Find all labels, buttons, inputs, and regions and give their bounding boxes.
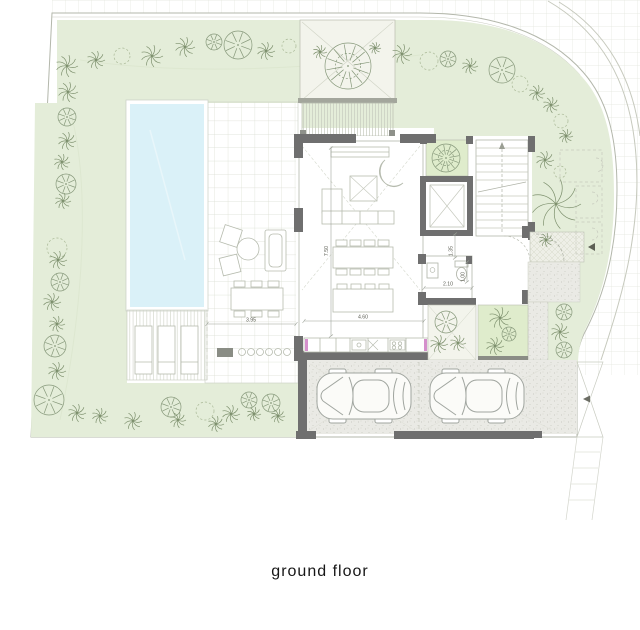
dim-hall-width: 1.35 bbox=[449, 246, 455, 256]
staircase bbox=[476, 140, 528, 236]
garage bbox=[296, 358, 560, 439]
window-accent bbox=[305, 339, 308, 351]
kitchen-counter bbox=[304, 338, 428, 352]
car-2 bbox=[430, 369, 524, 423]
pool bbox=[126, 100, 208, 311]
outdoor-grill bbox=[217, 348, 233, 357]
outdoor-chair bbox=[219, 254, 241, 276]
dim-wc-width: 1.00 bbox=[461, 272, 467, 282]
dim-kitchen-width: 4.60 bbox=[358, 315, 368, 321]
drive-arrow bbox=[583, 396, 590, 403]
pergola bbox=[302, 103, 393, 136]
floor-plan-svg: 7.50 4.60 3.95 2.10 1.00 1.35 bbox=[0, 0, 640, 540]
side-table bbox=[322, 189, 342, 213]
window-accent bbox=[424, 339, 427, 351]
driveway bbox=[560, 360, 603, 520]
pool-deck bbox=[127, 310, 207, 380]
courtyard bbox=[298, 20, 397, 138]
floor-plan-page: 7.50 4.60 3.95 2.10 1.00 1.35 ground flo… bbox=[0, 0, 640, 630]
sun-lounger bbox=[135, 326, 152, 374]
sun-lounger bbox=[181, 326, 198, 374]
kitchen-island bbox=[333, 289, 393, 312]
car-1 bbox=[317, 369, 411, 423]
dim-terrace-width: 3.95 bbox=[246, 318, 256, 324]
sun-lounger bbox=[158, 326, 175, 374]
planter-green bbox=[478, 305, 528, 360]
sofa bbox=[322, 211, 394, 224]
dim-living-depth: 7.50 bbox=[324, 246, 330, 256]
outdoor-round-table bbox=[237, 238, 259, 260]
elevator bbox=[420, 176, 473, 236]
dining-table bbox=[333, 247, 393, 268]
dim-bath-width: 2.10 bbox=[443, 282, 453, 288]
outdoor-dining-table bbox=[231, 288, 283, 310]
kitchen-sink bbox=[352, 340, 366, 350]
floor-title: ground floor bbox=[0, 563, 640, 581]
